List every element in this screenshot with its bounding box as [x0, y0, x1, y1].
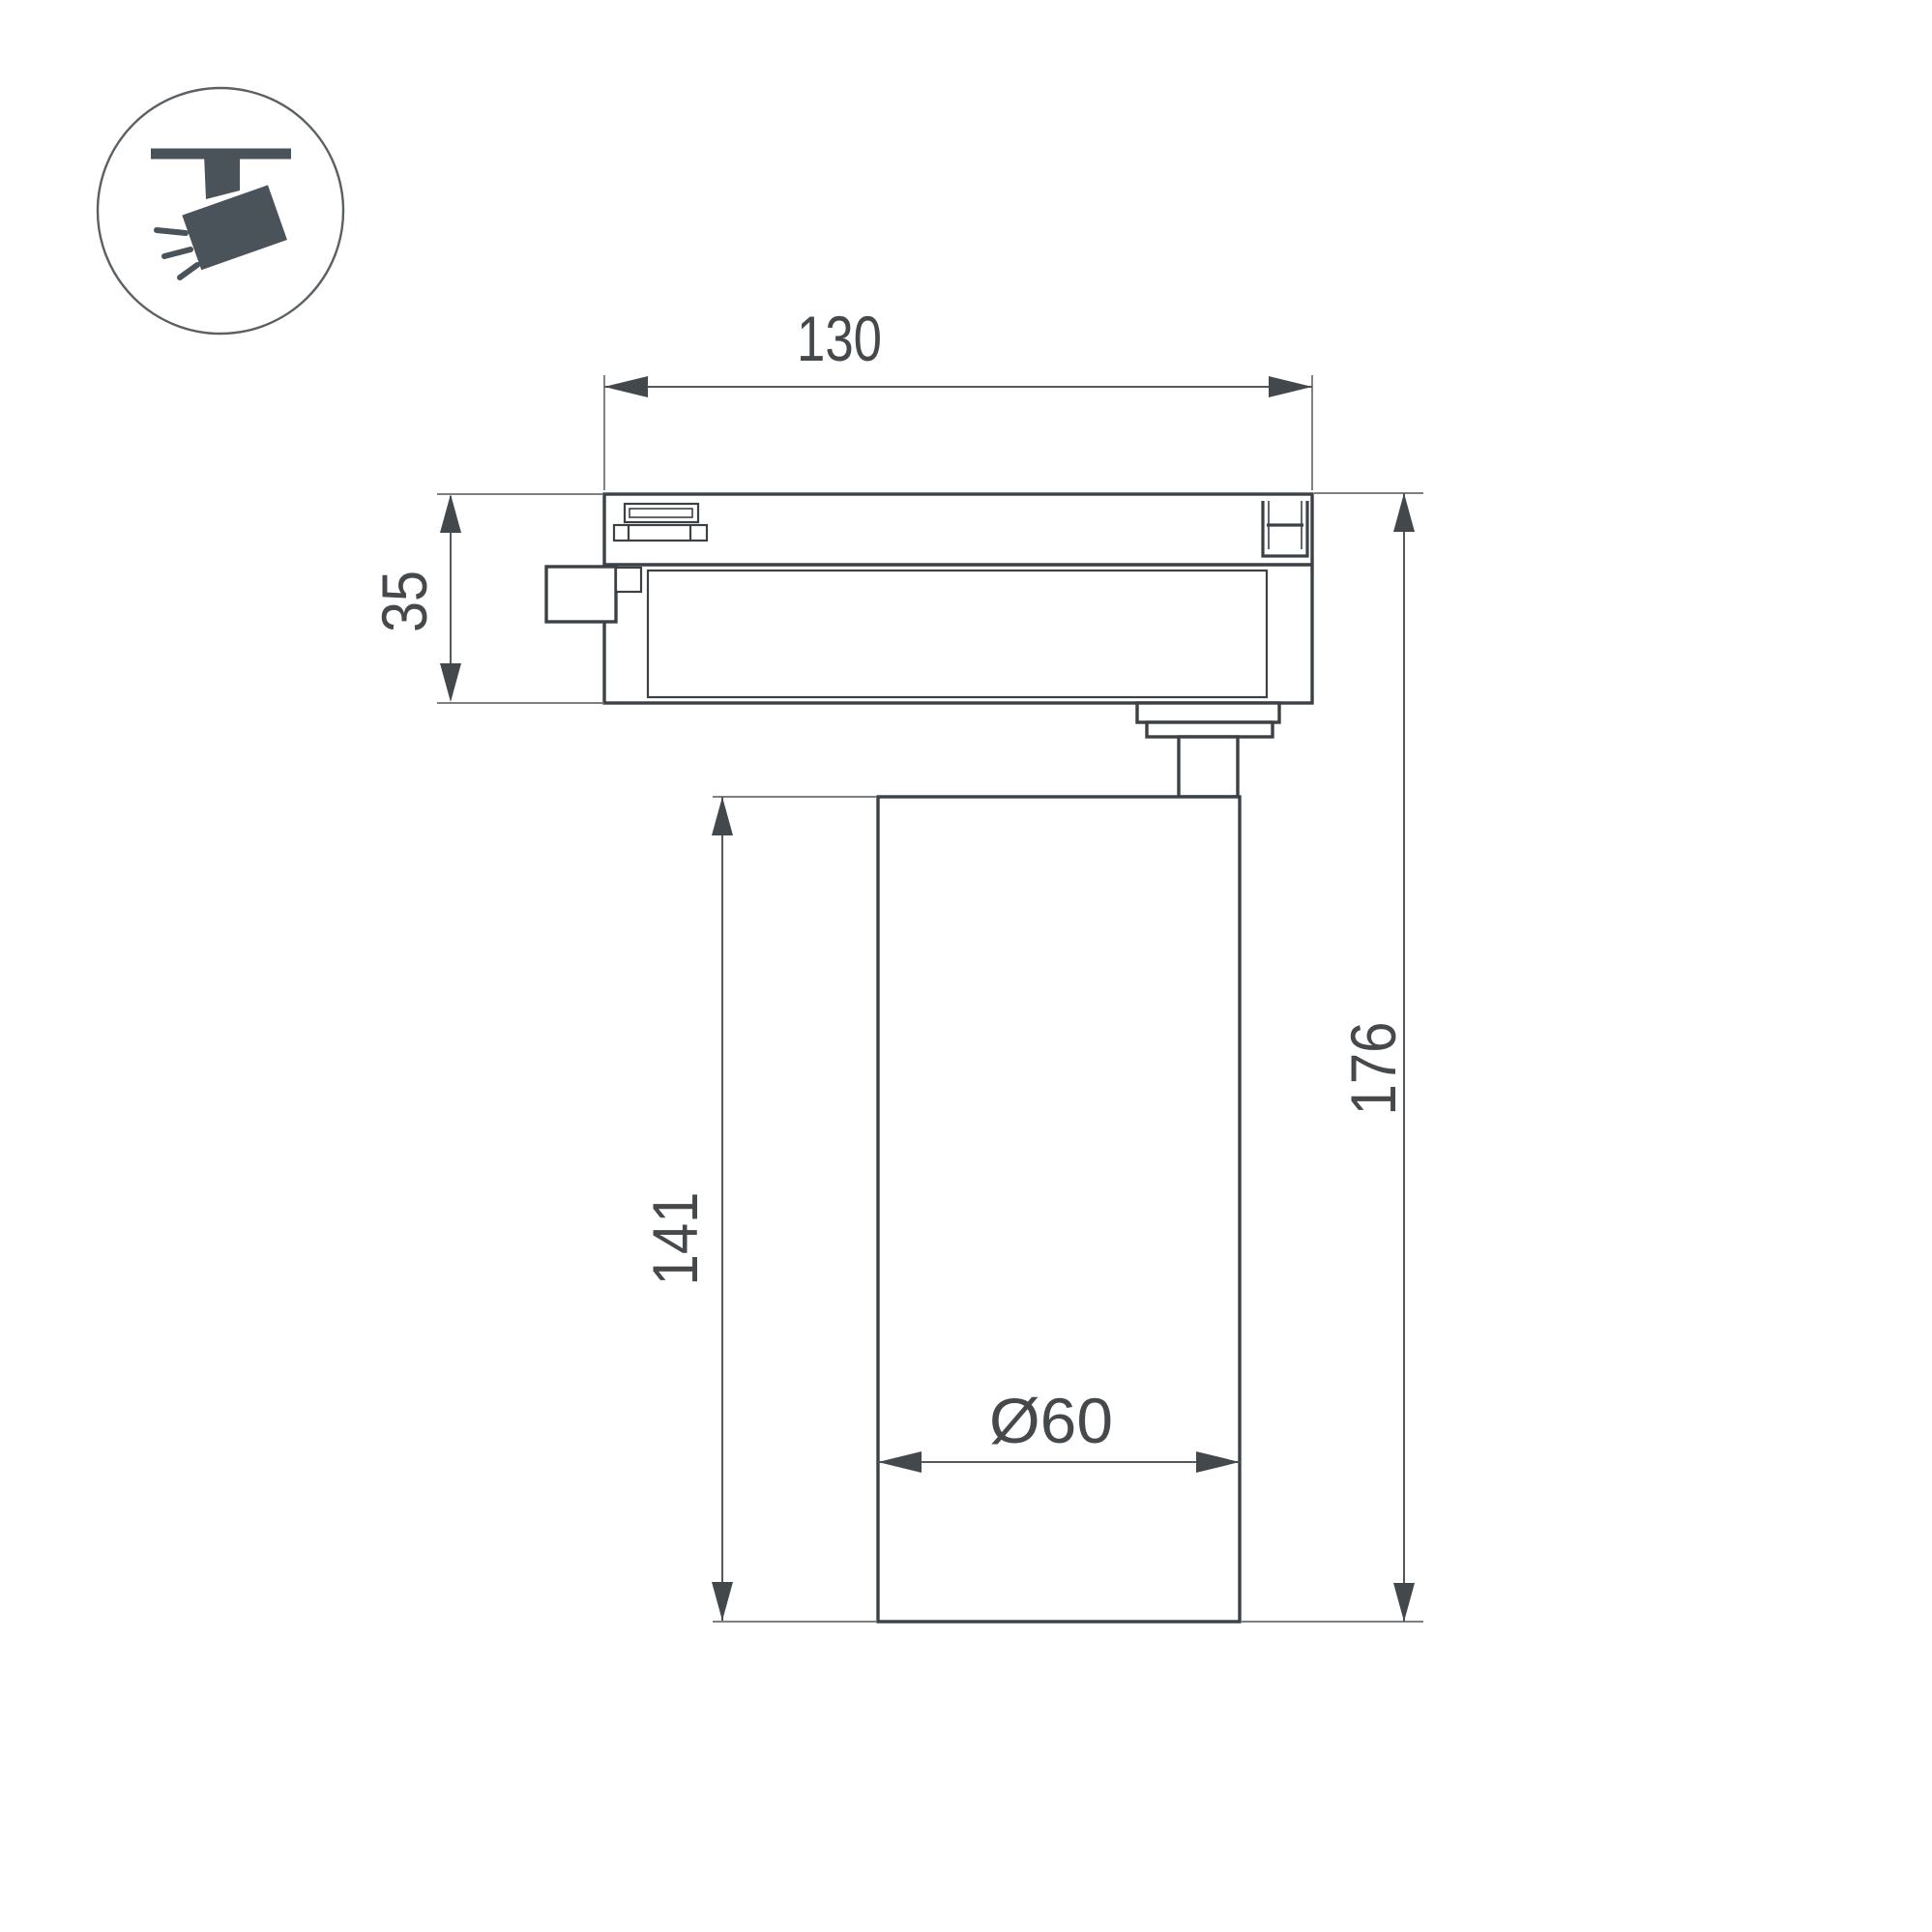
arrowhead-down — [712, 1582, 733, 1621]
dimension-overall-height: 176 — [1337, 493, 1415, 1622]
locking-clip — [1263, 501, 1307, 556]
dimension-body-height: 141 — [639, 797, 733, 1621]
dimension-label-diameter: Ø60 — [989, 1385, 1113, 1456]
dimension-drawing: 130 35 141 176 — [0, 0, 1932, 1932]
arrowhead-up — [712, 797, 733, 835]
technical-drawing-canvas: 130 35 141 176 — [0, 0, 1932, 1932]
dimension-label-overall-height: 176 — [1337, 1022, 1409, 1116]
dimension-label-width: 130 — [797, 303, 882, 374]
arrowhead-down — [1393, 1583, 1415, 1622]
joint-flange-lower — [1147, 722, 1273, 737]
arrowhead-left — [604, 376, 648, 397]
arrowhead-right — [1269, 376, 1312, 397]
lamp-cylinder-body — [878, 797, 1240, 1622]
icon-light-ray — [157, 230, 186, 233]
dimension-label-adapter-height: 35 — [368, 571, 440, 632]
release-lever-box — [546, 567, 616, 622]
joint-flange-upper — [1137, 703, 1279, 722]
contact-clip-upper — [625, 504, 698, 522]
dimension-adapter-height: 35 — [368, 494, 461, 702]
track-spotlight-icon — [98, 88, 343, 334]
dimension-width: 130 — [604, 303, 1312, 397]
track-adapter-housing — [604, 494, 1312, 703]
arrowhead-down — [440, 663, 461, 702]
joint-stem — [1179, 737, 1238, 797]
arrowhead-up — [440, 494, 461, 533]
release-lever-notch — [616, 568, 641, 592]
contact-clip-upper-inner — [629, 509, 692, 517]
dimension-label-body-height: 141 — [639, 1192, 711, 1286]
track-adapter-inner-body — [648, 571, 1267, 697]
arrowhead-up — [1393, 493, 1415, 532]
